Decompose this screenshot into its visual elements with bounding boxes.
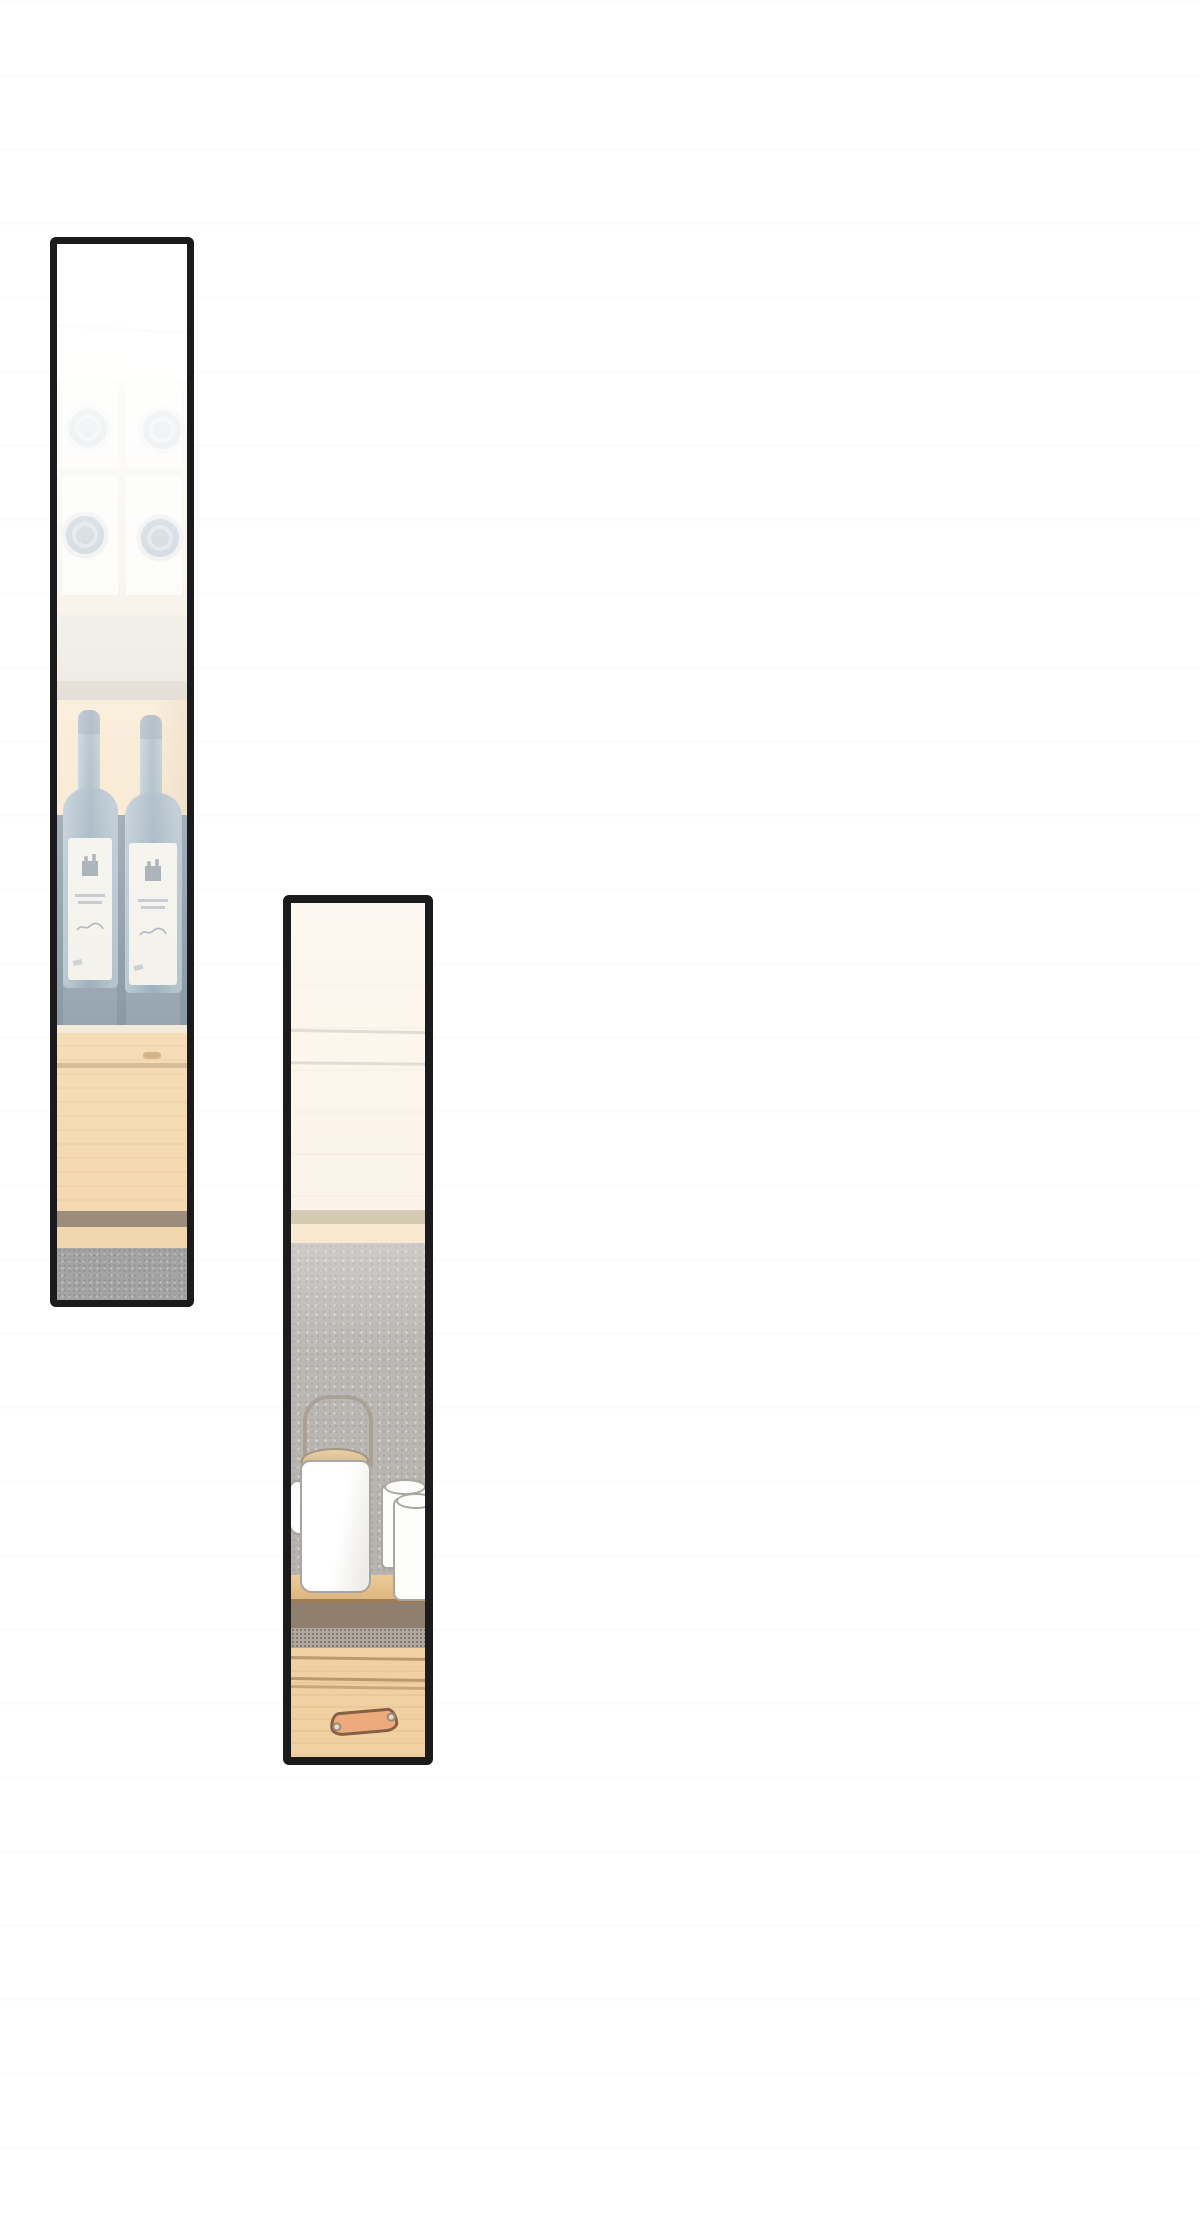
- wine-bottle-left: [63, 788, 118, 988]
- shelf-ghost-line: [50, 323, 194, 336]
- bottle-bottom-circle: [64, 404, 112, 452]
- webtoon-page: [0, 0, 1200, 2216]
- mug-front: [393, 1497, 433, 1601]
- mug-rim: [396, 1493, 433, 1509]
- kettle-body: [300, 1460, 371, 1593]
- label-small-mark: [134, 964, 144, 971]
- wall-fade-white: [57, 244, 187, 380]
- cream-plank-wall: [291, 903, 425, 1210]
- bottle-cap: [140, 715, 162, 739]
- wine-bottle-right: [125, 793, 182, 993]
- counter-top-edge: [57, 1025, 187, 1033]
- wall-trim-cream: [291, 1224, 425, 1243]
- shelf-board-dark: [57, 681, 187, 700]
- panel-wine-shelf: [50, 237, 194, 1307]
- label-text-line: [141, 906, 165, 909]
- wood-drawers: [291, 1648, 425, 1757]
- rack-frame-left: [57, 380, 62, 595]
- shelf-board-light: [57, 615, 187, 681]
- drawer-groove-line: [288, 1656, 429, 1661]
- plank-seam-line: [288, 1061, 429, 1065]
- bottle-cap: [78, 710, 100, 734]
- counter-wood: [57, 1033, 187, 1211]
- counter-base-stripe: [57, 1211, 187, 1227]
- wine-label: [129, 843, 177, 985]
- bottle-bottom-circle: [138, 406, 186, 454]
- label-small-mark: [73, 959, 83, 966]
- panel-tea-counter: [283, 895, 433, 1765]
- label-signature-icon: [75, 920, 105, 934]
- counter-apron-dark: [291, 1603, 425, 1628]
- castle-logo-icon: [145, 859, 161, 881]
- shelf-cream-band: [57, 595, 187, 615]
- counter-groove-line: [57, 1063, 187, 1068]
- drawer-groove-line: [288, 1685, 429, 1690]
- plank-seam-line: [288, 1029, 429, 1034]
- handle-rivet: [386, 1712, 396, 1722]
- bottle-bottom-circle: [136, 514, 184, 562]
- wine-rack: [57, 380, 187, 595]
- label-text-line: [78, 901, 102, 904]
- castle-logo-icon: [82, 854, 98, 876]
- label-text-line: [138, 899, 168, 902]
- rack-divider-horizontal: [57, 468, 187, 476]
- wall-trim-khaki: [291, 1210, 425, 1224]
- handle-rivet: [332, 1722, 342, 1732]
- counter-handle-mark: [143, 1052, 161, 1059]
- gray-floor: [57, 1248, 187, 1300]
- rack-divider-vertical: [118, 380, 126, 595]
- leather-drawer-handle: [329, 1707, 399, 1737]
- counter-base-wood: [57, 1227, 187, 1248]
- drawer-groove-line: [288, 1677, 429, 1682]
- stone-trim-strip: [291, 1628, 425, 1648]
- label-signature-icon: [138, 925, 168, 939]
- rack-frame-right: [182, 380, 187, 595]
- wine-label: [68, 838, 112, 980]
- label-text-line: [75, 894, 105, 897]
- bottle-bottom-circle: [61, 511, 109, 559]
